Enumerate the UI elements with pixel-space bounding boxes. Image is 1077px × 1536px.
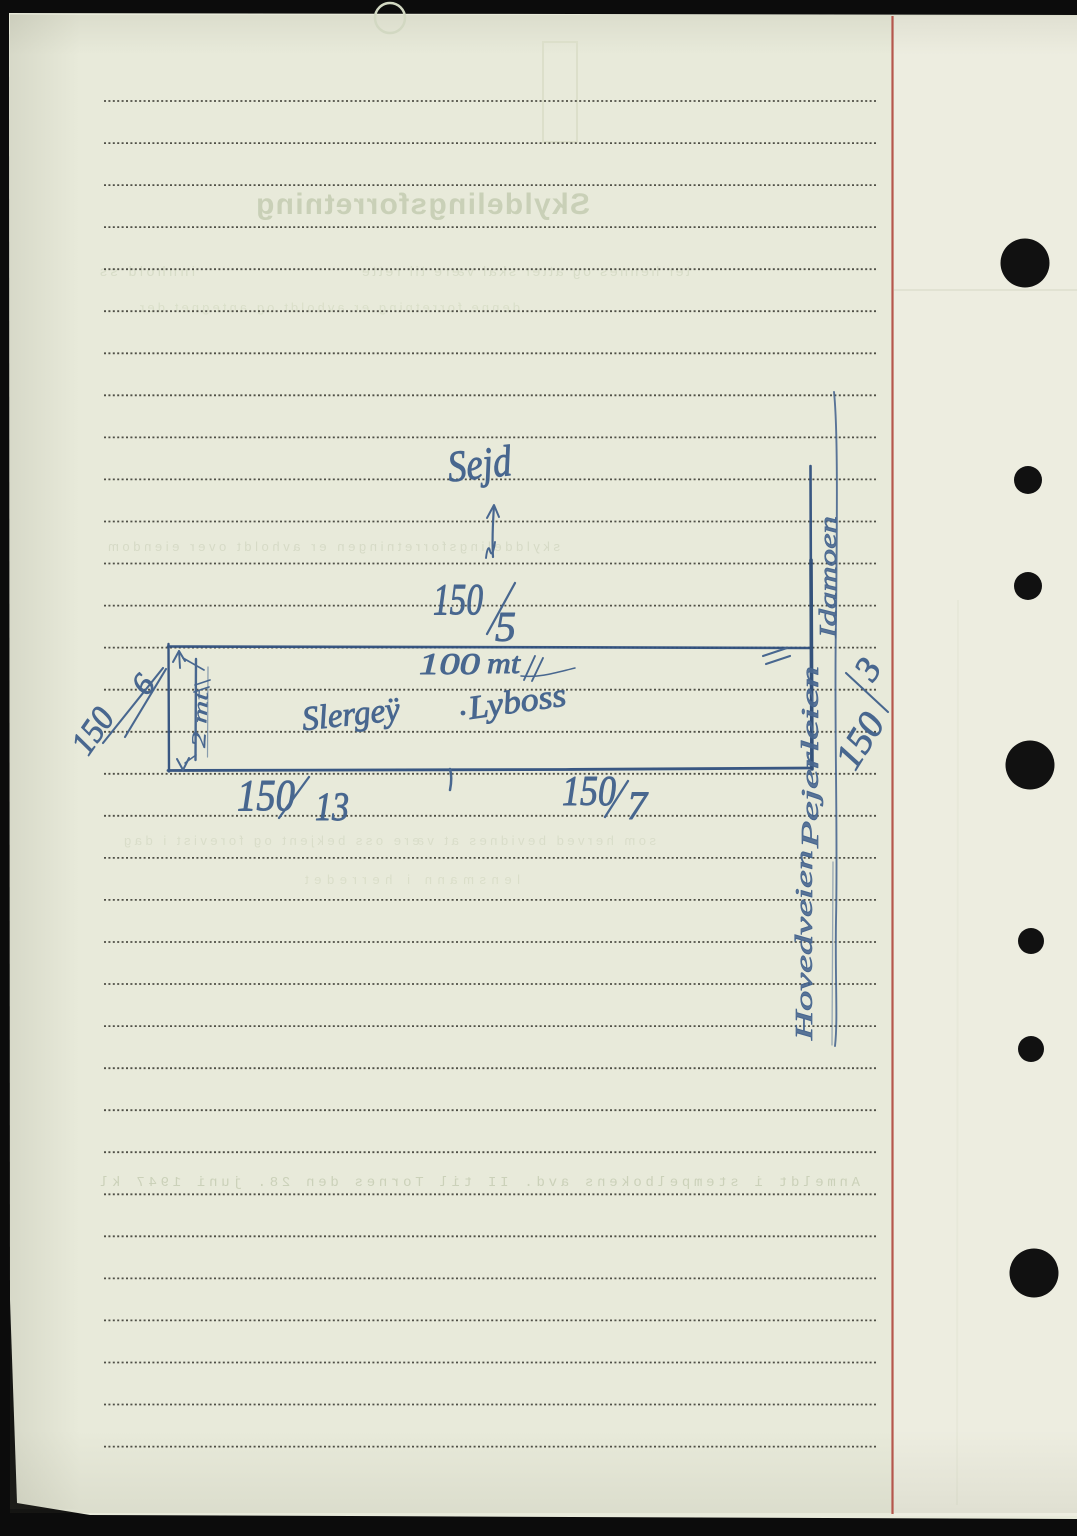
svg-text:Hovedveien: Hovedveien [792,850,818,1042]
svg-text:150: 150 [237,771,295,820]
svg-text:150: 150 [433,575,483,624]
svg-text:innhold ss: innhold ss [100,263,195,279]
svg-text:Skyldelingsforretning: Skyldelingsforretning [256,188,590,221]
svg-text:Idamoen: Idamoen [816,516,842,639]
svg-text:13: 13 [315,784,349,829]
svg-text:7: 7 [627,783,649,828]
svg-text:2 mt: 2 mt [188,690,213,748]
svg-text:mt: mt [487,647,521,680]
svg-text:150: 150 [562,769,616,815]
svg-text:100: 100 [419,646,481,681]
svg-text:Anmeldt i stempelbokens avd. I: Anmeldt i stempelbokens avd. II til Torn… [100,1175,860,1191]
svg-text:Sejd: Sejd [445,436,515,492]
svg-text:Pejerleien: Pejerleien [798,666,824,850]
